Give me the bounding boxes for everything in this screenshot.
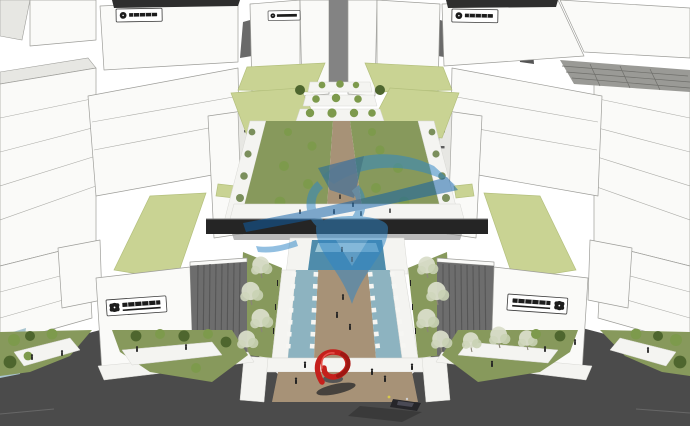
dark-parapet (446, 0, 558, 8)
architectural-rendering (0, 0, 690, 426)
company-emblem (554, 301, 565, 311)
rooftop-sign-center (268, 10, 300, 20)
rooftop-sign-left (116, 8, 162, 22)
company-emblem (109, 302, 120, 312)
rendering-canvas (0, 0, 690, 426)
tower-core (329, 0, 348, 82)
pedestrian-dot (388, 396, 391, 399)
rooftop-sign-right (452, 9, 498, 23)
pedestrian-dot (406, 398, 408, 400)
